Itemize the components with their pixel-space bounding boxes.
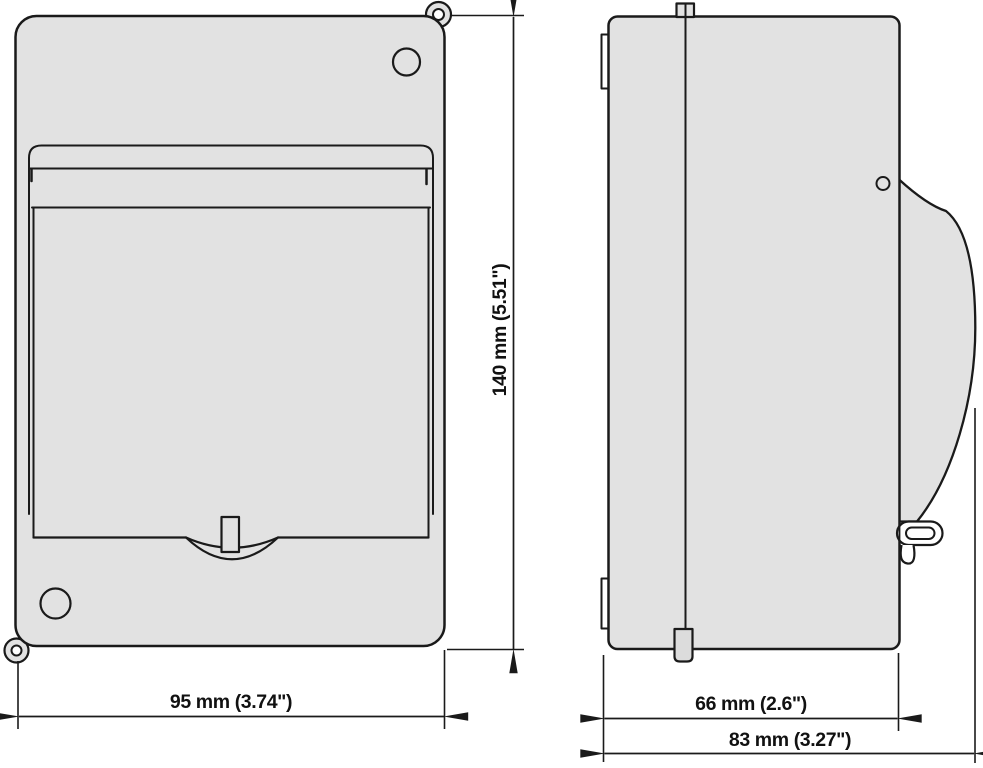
door-latch-tab (222, 517, 240, 552)
dimension-front-width: 95 mm (3.74") (18, 650, 445, 729)
dimension-label-front-width: 95 mm (3.74") (170, 691, 292, 713)
mounting-hole-top-icon (433, 9, 444, 20)
dimension-label-front-height: 140 mm (5.51") (489, 264, 511, 397)
door-profile-curve (899, 179, 976, 522)
latch-capsule (897, 522, 943, 546)
mounting-hole-bottom-icon (12, 646, 22, 656)
technical-drawing: 140 mm (5.51") 95 mm (3.74") 66 mm (2.6"… (0, 0, 983, 768)
enclosure-dimension-drawing: 140 mm (5.51") 95 mm (3.74") 66 mm (2.6"… (0, 0, 983, 768)
dimension-label-side-depth-body: 66 mm (2.6") (695, 693, 807, 715)
dimension-front-height: 140 mm (5.51") (447, 16, 524, 650)
front-view (5, 2, 452, 663)
bottom-tab (675, 629, 693, 662)
enclosure-side-body (609, 17, 900, 650)
latch-hook-icon (901, 545, 915, 564)
side-view (602, 4, 976, 662)
dimension-label-side-depth-total: 83 mm (3.27") (729, 729, 851, 751)
